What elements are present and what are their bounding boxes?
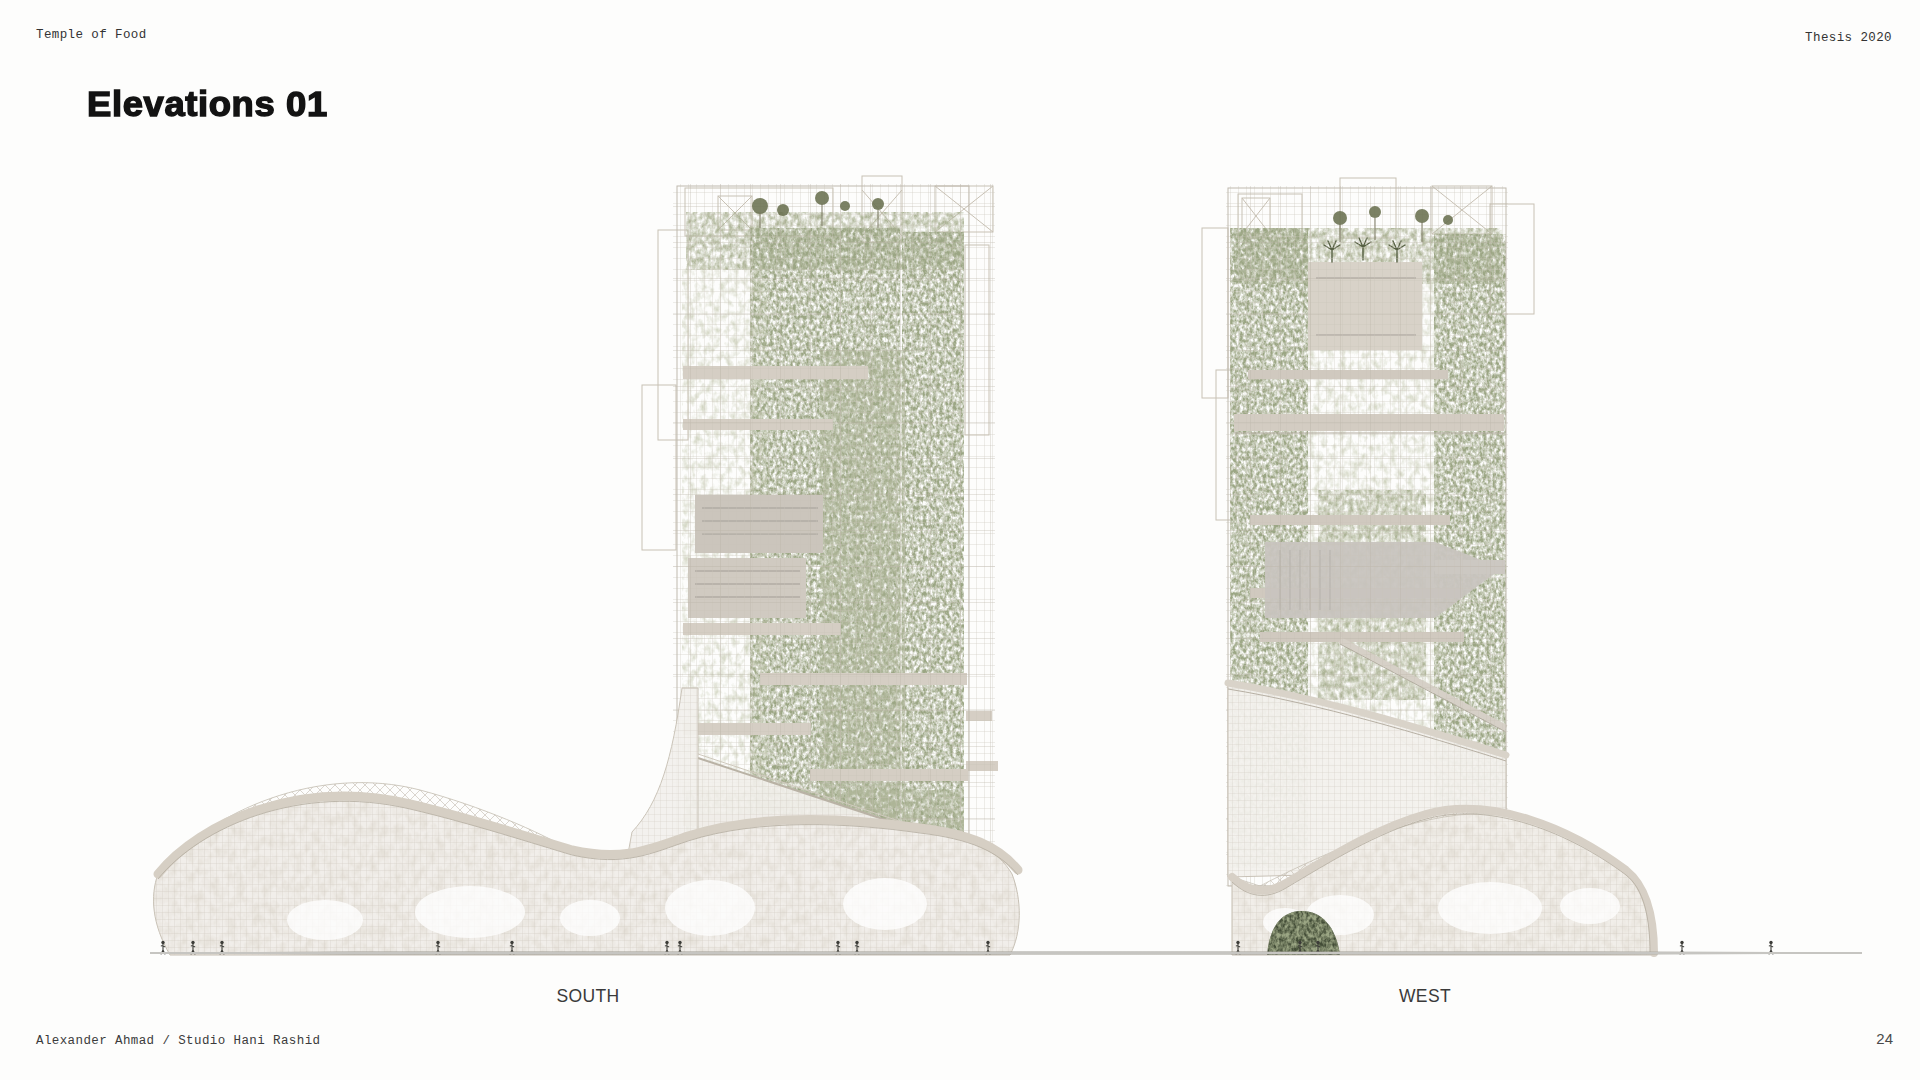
header-project-title: Temple of Food (36, 28, 147, 42)
slide: Temple of Food Thesis 2020 Elevations 01 (0, 0, 1920, 1080)
ground-line (150, 952, 1862, 954)
footer-credit: Alexander Ahmad / Studio Hani Rashid (36, 1034, 320, 1048)
figure-caption-south: SOUTH (478, 986, 698, 1007)
west-elevation-drawing (1190, 170, 1890, 960)
figure-caption-west: WEST (1315, 986, 1535, 1007)
page-title: Elevations 01 (87, 84, 328, 124)
header-context-label: Thesis 2020 (1805, 31, 1892, 45)
page-number: 24 (1876, 1030, 1893, 1047)
south-elevation-drawing (120, 170, 1050, 960)
